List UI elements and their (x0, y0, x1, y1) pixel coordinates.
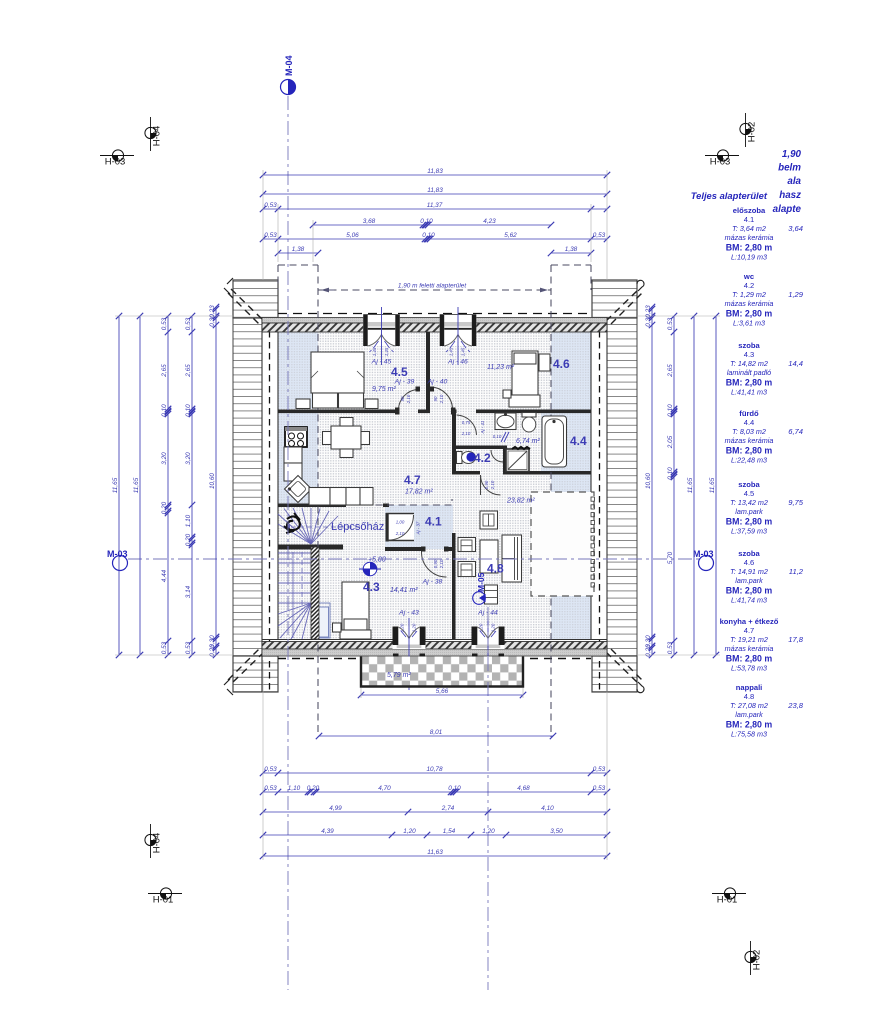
svg-text:14,4: 14,4 (788, 359, 803, 368)
svg-text:0,53: 0,53 (185, 641, 192, 654)
svg-text:4.3: 4.3 (744, 350, 755, 359)
svg-text:Teljes alapterület: Teljes alapterület (691, 190, 768, 201)
svg-text:4.4: 4.4 (570, 434, 587, 448)
svg-text:1,45: 1,45 (384, 347, 389, 356)
svg-text:konyha + étkező: konyha + étkező (720, 617, 779, 626)
svg-text:BM: 2,80 m: BM: 2,80 m (726, 378, 773, 388)
svg-text:2,74: 2,74 (441, 805, 455, 812)
svg-text:3,20: 3,20 (161, 452, 168, 465)
svg-text:lam.park: lam.park (735, 507, 763, 516)
svg-text:előszoba: előszoba (733, 206, 766, 215)
svg-text:0,53: 0,53 (264, 232, 277, 239)
svg-text:11,23 m²: 11,23 m² (487, 364, 515, 371)
svg-text:1,20: 1,20 (479, 623, 484, 632)
svg-text:0,53: 0,53 (264, 766, 277, 773)
svg-text:5,06: 5,06 (346, 232, 359, 239)
svg-text:11,65: 11,65 (112, 477, 119, 493)
svg-text:szoba: szoba (738, 549, 760, 558)
svg-text:L:10,19 m3: L:10,19 m3 (731, 253, 767, 262)
svg-text:1,10: 1,10 (288, 785, 301, 792)
svg-text:lam.park: lam.park (735, 576, 763, 585)
svg-text:11,65: 11,65 (687, 477, 694, 493)
svg-text:T: 1,29 m2: T: 1,29 m2 (732, 290, 766, 299)
svg-text:0,53: 0,53 (264, 202, 277, 209)
svg-text:3,50: 3,50 (550, 828, 563, 835)
svg-text:11,2: 11,2 (789, 567, 804, 576)
svg-text:6,74 m²: 6,74 m² (516, 438, 540, 445)
svg-text:5,62: 5,62 (504, 232, 517, 239)
svg-text:Aj - 45: Aj - 45 (371, 359, 392, 366)
svg-text:0,75: 0,75 (462, 420, 471, 425)
svg-text:mázas kerámia: mázas kerámia (725, 436, 774, 445)
svg-text:0,53: 0,53 (185, 317, 192, 330)
svg-text:4.1: 4.1 (425, 515, 442, 529)
svg-text:11,83: 11,83 (427, 168, 443, 175)
svg-text:17,8: 17,8 (788, 635, 804, 644)
svg-text:11,37: 11,37 (427, 202, 443, 209)
svg-text:1,29: 1,29 (788, 290, 804, 299)
svg-text:T: 3,64 m2: T: 3,64 m2 (732, 224, 766, 233)
svg-text:nappali: nappali (736, 683, 763, 692)
svg-text:M-05: M-05 (476, 572, 486, 592)
svg-text:2,10: 2,10 (439, 394, 444, 404)
svg-text:23,82 m²: 23,82 m² (506, 498, 535, 505)
svg-text:1,54: 1,54 (443, 828, 456, 835)
svg-text:1,00: 1,00 (396, 520, 405, 525)
svg-text:Aj - 46: Aj - 46 (447, 359, 468, 366)
svg-text:M-04: M-04 (284, 55, 294, 76)
svg-text:4.8: 4.8 (487, 562, 504, 576)
svg-text:4,68: 4,68 (517, 785, 530, 792)
svg-text:1,38: 1,38 (565, 246, 578, 253)
svg-text:T: 14,91 m2: T: 14,91 m2 (730, 567, 768, 576)
svg-text:10,78: 10,78 (427, 766, 443, 773)
svg-text:wc: wc (743, 272, 754, 281)
svg-text:3,20: 3,20 (185, 452, 192, 465)
svg-text:BM: 2,80 m: BM: 2,80 m (726, 309, 773, 319)
svg-text:23,8: 23,8 (787, 701, 804, 710)
svg-text:1,45: 1,45 (461, 347, 466, 356)
svg-text:4.5: 4.5 (391, 365, 408, 379)
svg-text:4.4: 4.4 (744, 418, 755, 427)
svg-text:T: 27,08 m2: T: 27,08 m2 (730, 701, 768, 710)
svg-text:3,68: 3,68 (363, 218, 376, 225)
svg-text:T: 8,03 m2: T: 8,03 m2 (732, 427, 766, 436)
svg-text:Aj - 41: Aj - 41 (480, 420, 485, 434)
svg-text:4,44: 4,44 (161, 569, 168, 582)
svg-text:BM: 2,80 m: BM: 2,80 m (726, 517, 773, 527)
svg-text:90: 90 (433, 396, 438, 401)
svg-text:L:41,74 m3: L:41,74 m3 (731, 596, 767, 605)
svg-text:Aj - 39: Aj - 39 (394, 379, 415, 386)
svg-text:4.5: 4.5 (744, 489, 755, 498)
svg-text:0,90: 0,90 (433, 559, 438, 568)
svg-text:4.2: 4.2 (744, 281, 755, 290)
svg-text:szoba: szoba (738, 341, 760, 350)
svg-text:4.1: 4.1 (744, 215, 755, 224)
svg-text:Lépcsőház: Lépcsőház (331, 521, 384, 533)
svg-text:1,20: 1,20 (491, 623, 496, 632)
svg-text:belm: belm (778, 163, 801, 174)
svg-text:3,64: 3,64 (788, 224, 803, 233)
svg-text:17,82 m²: 17,82 m² (405, 489, 433, 496)
svg-text:2,10: 2,10 (406, 394, 411, 404)
svg-text:0,53: 0,53 (593, 785, 606, 792)
svg-text:11,63: 11,63 (427, 849, 443, 856)
svg-text:2,10: 2,10 (395, 531, 405, 536)
svg-text:szoba: szoba (738, 480, 760, 489)
svg-text:0,90: 0,90 (484, 480, 489, 489)
svg-text:1,45: 1,45 (449, 347, 454, 356)
svg-text:0,53: 0,53 (161, 641, 168, 654)
svg-text:Aj - 40: Aj - 40 (427, 379, 448, 386)
svg-text:11,65: 11,65 (133, 477, 140, 493)
svg-text:BM: 2,80 m: BM: 2,80 m (726, 446, 773, 456)
svg-text:1,38: 1,38 (292, 246, 305, 253)
svg-text:4.6: 4.6 (553, 357, 570, 371)
svg-text:0,53: 0,53 (593, 232, 606, 239)
svg-text:4.7: 4.7 (404, 473, 421, 487)
svg-text:4,99: 4,99 (329, 805, 342, 812)
svg-text:M-03: M-03 (107, 549, 128, 559)
svg-text:2,05: 2,05 (667, 435, 674, 449)
svg-text:T: 19,21 m2: T: 19,21 m2 (730, 635, 768, 644)
svg-text:2,10: 2,10 (439, 559, 444, 569)
svg-text:Aj - 37: Aj - 37 (416, 521, 421, 535)
svg-text:4,70: 4,70 (378, 785, 391, 792)
svg-text:L:53,78 m3: L:53,78 m3 (731, 664, 767, 673)
svg-text:mázas kerámia: mázas kerámia (725, 299, 774, 308)
svg-text:90: 90 (400, 396, 405, 401)
svg-text:2,10: 2,10 (461, 431, 471, 436)
svg-text:0,53: 0,53 (161, 317, 168, 330)
svg-text:1,45: 1,45 (372, 347, 377, 356)
svg-text:BM: 2,80 m: BM: 2,80 m (726, 586, 773, 596)
svg-text:L:41,41 m3: L:41,41 m3 (731, 388, 767, 397)
svg-text:M-03: M-03 (693, 549, 714, 559)
svg-text:2,10: 2,10 (490, 480, 495, 490)
svg-text:9,75: 9,75 (788, 498, 804, 507)
svg-text:10,60: 10,60 (645, 473, 652, 489)
svg-text:0,53: 0,53 (667, 317, 674, 330)
svg-text:BM: 2,80 m: BM: 2,80 m (726, 243, 773, 253)
svg-text:mázas kerámia: mázas kerámia (725, 233, 774, 242)
svg-text:11,65: 11,65 (709, 477, 716, 493)
svg-text:4.7: 4.7 (744, 626, 755, 635)
svg-text:10,60: 10,60 (209, 473, 216, 489)
svg-text:5,79 m²: 5,79 m² (387, 672, 411, 679)
svg-text:T: 14,82 m2: T: 14,82 m2 (730, 359, 768, 368)
svg-text:4,10: 4,10 (541, 805, 554, 812)
svg-text:mázas kerámia: mázas kerámia (725, 644, 774, 653)
svg-text:0,53: 0,53 (264, 785, 277, 792)
svg-text:2,65: 2,65 (161, 364, 168, 378)
svg-text:lam.park: lam.park (735, 710, 763, 719)
svg-text:11,83: 11,83 (427, 187, 443, 194)
svg-text:6,74: 6,74 (788, 427, 803, 436)
svg-text:4.6: 4.6 (744, 558, 755, 567)
svg-text:1,20: 1,20 (403, 828, 416, 835)
svg-text:4.2: 4.2 (474, 451, 491, 465)
svg-text:9,75 m²: 9,75 m² (372, 386, 396, 393)
svg-text:4.8: 4.8 (744, 692, 755, 701)
svg-text:Aj - 38: Aj - 38 (422, 579, 443, 586)
svg-text:L:3,61 m3: L:3,61 m3 (733, 319, 765, 328)
svg-text:4.3: 4.3 (363, 580, 380, 594)
svg-text:4,39: 4,39 (321, 828, 334, 835)
svg-text:T: 13,42 m2: T: 13,42 m2 (730, 498, 768, 507)
svg-text:14,41 m²: 14,41 m² (390, 587, 418, 594)
svg-text:1,10: 1,10 (185, 514, 192, 527)
svg-text:alapte: alapte (773, 204, 802, 215)
svg-text:hasz: hasz (779, 190, 801, 201)
svg-text:+5,80: +5,80 (368, 557, 386, 564)
svg-text:laminált padló: laminált padló (727, 368, 771, 377)
svg-text:0,53: 0,53 (667, 641, 674, 654)
svg-text:L:37,59 m3: L:37,59 m3 (731, 527, 767, 536)
svg-text:1,20: 1,20 (400, 623, 405, 632)
svg-text:BM: 2,80 m: BM: 2,80 m (726, 654, 773, 664)
svg-text:1,90: 1,90 (782, 149, 802, 160)
svg-text:ala: ala (787, 176, 801, 187)
svg-text:L:22,48 m3: L:22,48 m3 (731, 456, 767, 465)
svg-text:2,65: 2,65 (185, 364, 192, 378)
svg-text:BM: 2,80 m: BM: 2,80 m (726, 720, 773, 730)
svg-text:3,14: 3,14 (185, 585, 192, 598)
svg-text:2,65: 2,65 (667, 364, 674, 378)
svg-text:L:75,58 m3: L:75,58 m3 (731, 730, 767, 739)
svg-text:1,90 m feletti alapterület: 1,90 m feletti alapterület (398, 283, 466, 290)
svg-text:1,20: 1,20 (412, 623, 417, 632)
svg-text:fürdő: fürdő (739, 409, 759, 418)
svg-text:5,66: 5,66 (436, 688, 449, 695)
svg-text:Aj - 43: Aj - 43 (398, 610, 419, 617)
svg-text:5,70: 5,70 (667, 551, 674, 564)
svg-text:0,53: 0,53 (593, 766, 606, 773)
svg-text:0,10: 0,10 (493, 434, 502, 439)
svg-text:4,23: 4,23 (483, 218, 496, 225)
svg-text:1,20: 1,20 (482, 828, 495, 835)
svg-text:8,01: 8,01 (430, 729, 443, 736)
